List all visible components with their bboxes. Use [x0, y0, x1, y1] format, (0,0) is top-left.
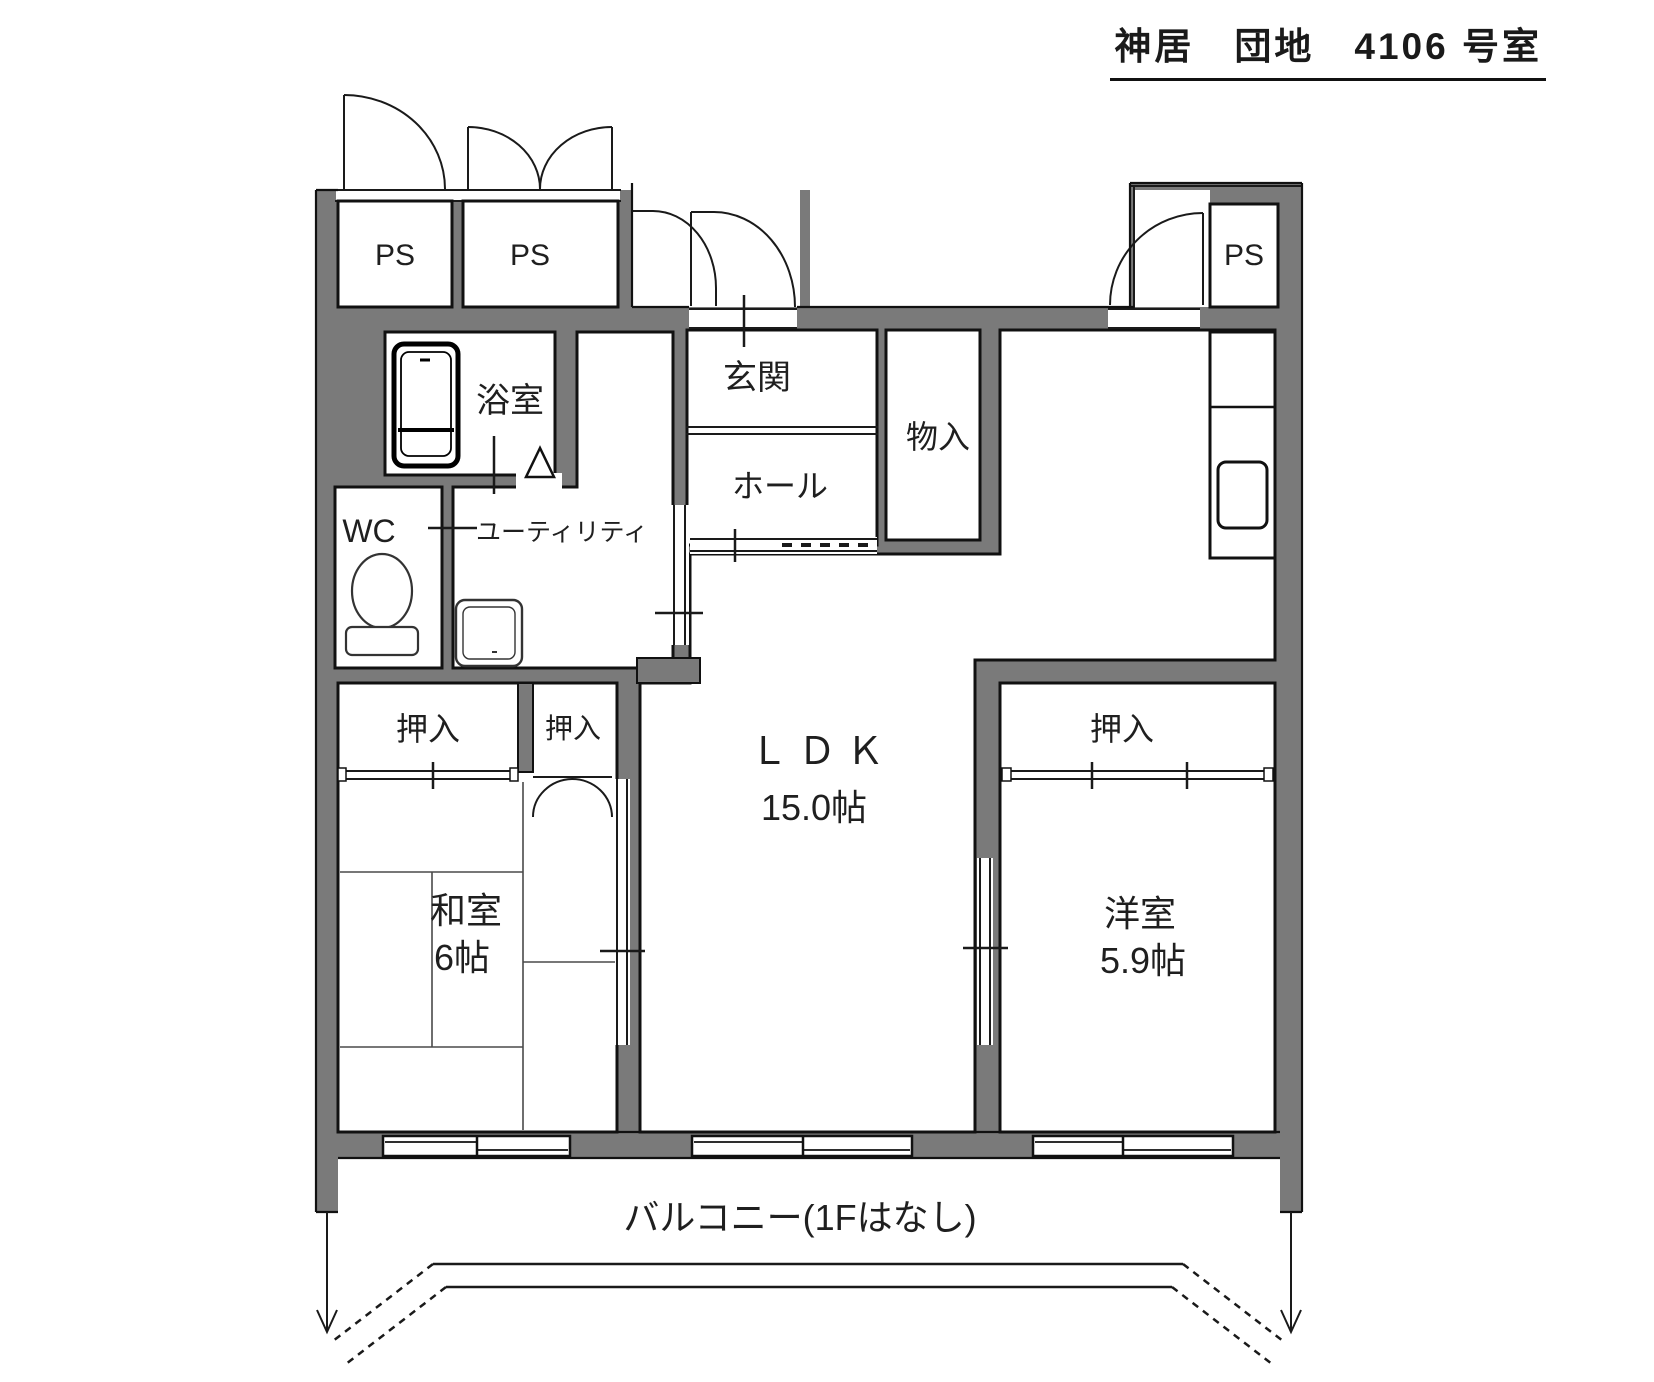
- label-balcony: バルコニー(1Fはなし): [623, 1200, 976, 1236]
- closet-divider: [518, 683, 533, 772]
- label-japanese-room-size: 6帖: [434, 940, 490, 976]
- plan-title: 神居 団地 4106 号室: [1110, 16, 1546, 81]
- label-utility: ユーティリティ: [476, 521, 648, 546]
- window-ldk: [692, 1136, 912, 1156]
- label-ldk-size: 15.0帖: [761, 790, 867, 826]
- label-ps-right: PS: [1224, 241, 1264, 271]
- bathtub-icon: [394, 344, 458, 466]
- floor-plan-drawing: [0, 0, 1654, 1382]
- label-closet-small: 押入: [545, 715, 601, 743]
- label-western-room-name: 洋室: [1104, 896, 1176, 932]
- label-japanese-room-name: 和室: [430, 893, 502, 929]
- window-japanese-room: [383, 1136, 570, 1156]
- boundary-arrow-right: [1281, 1212, 1301, 1332]
- label-ldk-name: ＬＤＫ: [750, 733, 894, 771]
- boundary-arrow-left: [317, 1212, 337, 1332]
- toilet-icon: [346, 554, 418, 655]
- floor-plan-page: 神居 団地 4106 号室 PS PS PS 浴室 WC ユーティリティ 玄関 …: [0, 0, 1654, 1382]
- label-ps-left: PS: [375, 241, 415, 271]
- label-closet-left: 押入: [396, 713, 460, 745]
- label-wc: WC: [342, 515, 395, 547]
- windows: [383, 1136, 1233, 1156]
- label-storage: 物入: [906, 421, 970, 453]
- label-hall: ホール: [732, 470, 828, 502]
- label-bathroom: 浴室: [476, 384, 544, 418]
- kitchen-sink-icon: [1218, 462, 1267, 528]
- label-western-room-size: 5.9帖: [1100, 943, 1186, 979]
- label-entrance: 玄関: [723, 361, 791, 395]
- window-western-room: [1033, 1136, 1233, 1156]
- kitchen-counter: [1210, 332, 1275, 558]
- label-closet-right: 押入: [1090, 713, 1154, 745]
- label-ps-mid: PS: [510, 241, 550, 271]
- utility-sink-icon: [456, 600, 522, 666]
